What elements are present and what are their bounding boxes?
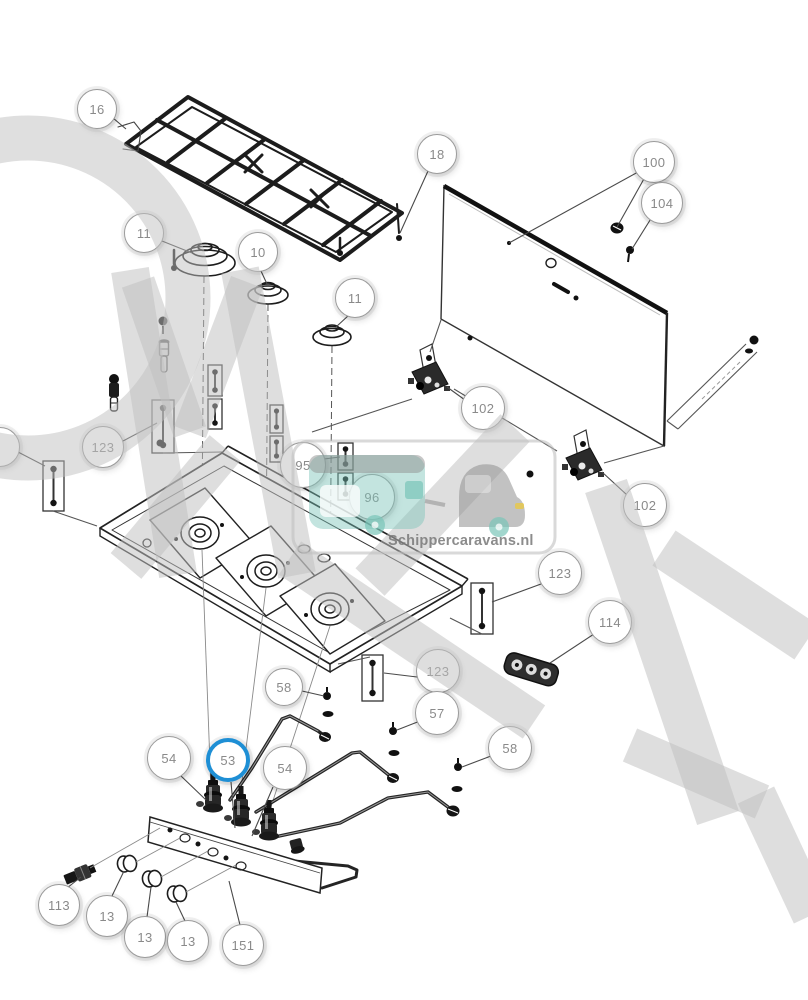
callout-label: 13 <box>137 930 152 945</box>
callout-label: 123 <box>549 566 572 581</box>
callout-layer: 1618111011100104102102123959612311412358… <box>0 0 808 1000</box>
callout-16[interactable]: 16 <box>77 89 117 129</box>
callout-95[interactable]: 95 <box>280 442 326 488</box>
callout-100[interactable]: 100 <box>633 141 675 183</box>
callout-label: 102 <box>472 401 495 416</box>
callout-102[interactable]: 102 <box>461 386 505 430</box>
callout-96[interactable]: 96 <box>349 474 395 520</box>
callout-label: 104 <box>651 196 674 211</box>
callout-label: 123 <box>92 440 115 455</box>
callout-13[interactable]: 13 <box>86 895 128 937</box>
callout-label: 54 <box>161 751 176 766</box>
callout-58[interactable]: 58 <box>265 668 303 706</box>
callout-label: 58 <box>502 741 517 756</box>
callout-151[interactable]: 151 <box>222 924 264 966</box>
callout-label: 123 <box>427 664 450 679</box>
parts-diagram-page: 1618111011100104102102123959612311412358… <box>0 0 808 1000</box>
callout-label: 96 <box>364 490 379 505</box>
callout-54[interactable]: 54 <box>147 736 191 780</box>
callout-113[interactable]: 113 <box>38 884 80 926</box>
callout-unlabeled[interactable] <box>0 427 20 467</box>
callout-label: 100 <box>643 155 666 170</box>
callout-104[interactable]: 104 <box>641 182 683 224</box>
callout-label: 54 <box>277 761 292 776</box>
callout-label: 13 <box>99 909 114 924</box>
callout-label: 53 <box>220 753 235 768</box>
callout-57[interactable]: 57 <box>415 691 459 735</box>
callout-13[interactable]: 13 <box>124 916 166 958</box>
callout-58[interactable]: 58 <box>488 726 532 770</box>
callout-label: 16 <box>89 102 104 117</box>
callout-10[interactable]: 10 <box>238 232 278 272</box>
callout-label: 18 <box>429 147 444 162</box>
callout-11[interactable]: 11 <box>335 278 375 318</box>
callout-label: 102 <box>634 498 657 513</box>
callout-label: 58 <box>276 680 291 695</box>
callout-114[interactable]: 114 <box>588 600 632 644</box>
callout-123[interactable]: 123 <box>416 649 460 693</box>
callout-102[interactable]: 102 <box>623 483 667 527</box>
callout-label: 11 <box>137 226 151 241</box>
callout-53[interactable]: 53 <box>206 738 250 782</box>
callout-13[interactable]: 13 <box>167 920 209 962</box>
callout-123[interactable]: 123 <box>82 426 124 468</box>
callout-label: 11 <box>348 291 362 306</box>
callout-label: 95 <box>295 458 310 473</box>
callout-label: 113 <box>48 898 70 913</box>
callout-label: 57 <box>429 706 444 721</box>
callout-label: 13 <box>180 934 195 949</box>
callout-18[interactable]: 18 <box>417 134 457 174</box>
callout-label: 151 <box>232 938 255 953</box>
callout-54[interactable]: 54 <box>263 746 307 790</box>
callout-11[interactable]: 11 <box>124 213 164 253</box>
callout-label: 10 <box>250 245 265 260</box>
callout-label: 114 <box>599 615 621 630</box>
callout-123[interactable]: 123 <box>538 551 582 595</box>
